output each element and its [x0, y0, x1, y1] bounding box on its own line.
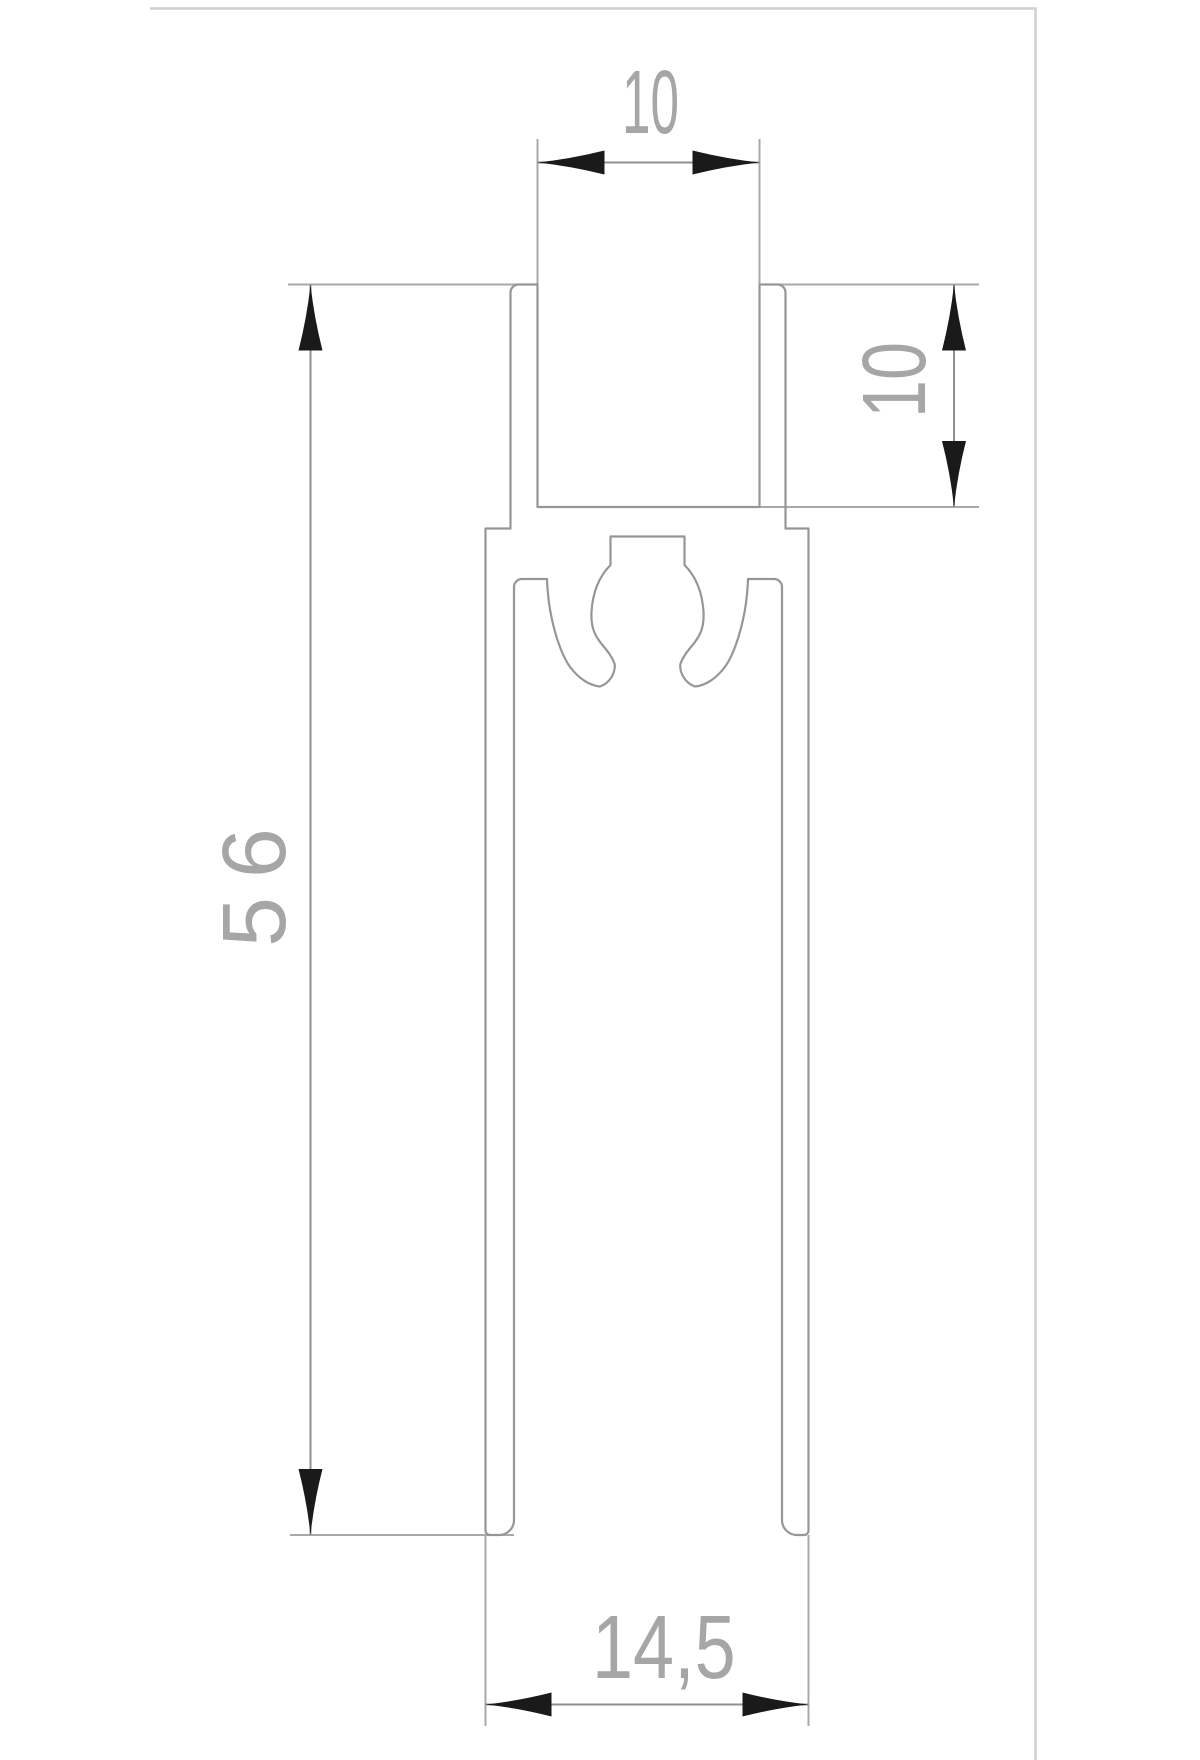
svg-text:10: 10	[622, 53, 679, 153]
svg-text:10: 10	[845, 342, 945, 418]
svg-text:56: 56	[205, 828, 305, 947]
svg-text:14,5: 14,5	[592, 1598, 736, 1698]
